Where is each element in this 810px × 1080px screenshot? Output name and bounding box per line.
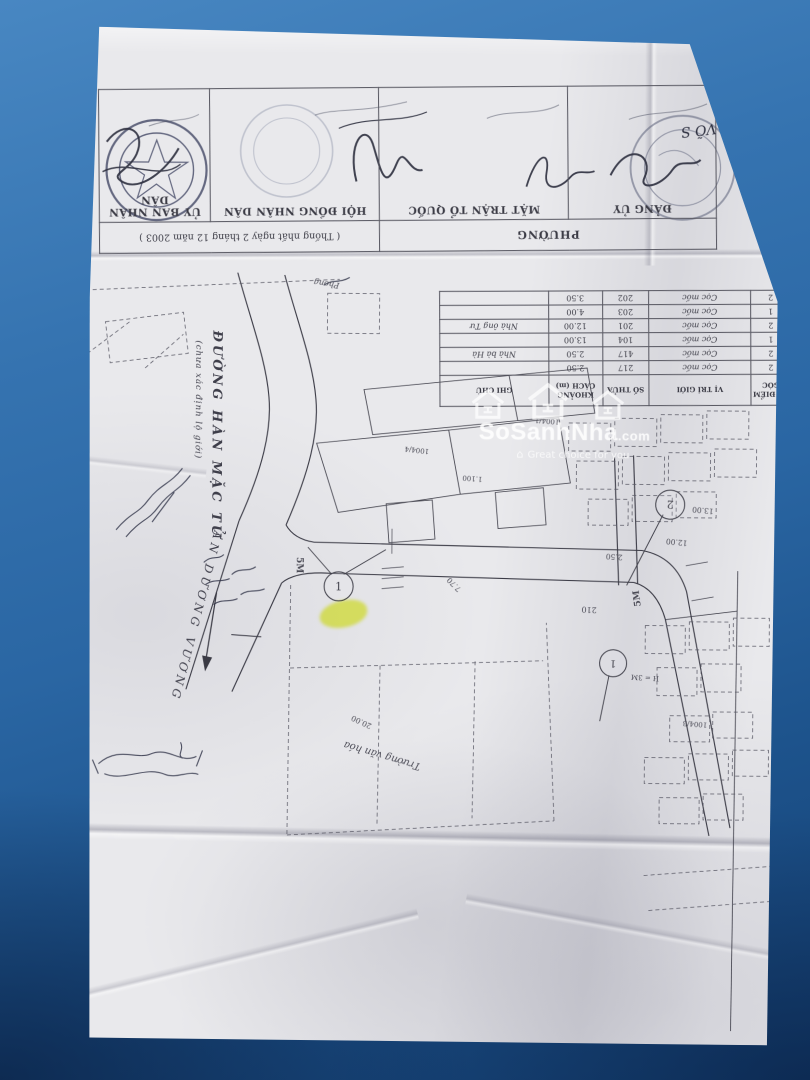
dimension-label: 13.00 [692,505,714,516]
approval-header-phuong: PHƯỜNG [380,218,717,251]
table-row: 2 Cọc mốc 417 2.50 Nhà bà Hà [440,346,791,361]
photo-scene: PHƯỜNG ( Thống nhất ngày 2 tháng 12 năm … [0,0,810,1080]
approval-table: PHƯỜNG ( Thống nhất ngày 2 tháng 12 năm … [98,85,717,254]
road-width-label: 5M [632,590,644,607]
table-row: 1 Cọc mốc 203 4.00 [440,304,791,319]
dimension-label: 12.00 [666,537,688,548]
plot-number-label: 210 [581,605,597,615]
table-row: 2 Cọc mốc 217 2.50 [440,360,791,375]
approval-cell-mat-tran: MẶT TRẬN TỔ QUỐC [379,86,569,220]
house-icon: ⌂ [517,448,524,461]
watermark: SoSanhNha.com ⌂Great choice for you [469,380,655,461]
dimension-label: 2.50 [606,552,623,562]
survey-marker-1: 1 [324,571,354,601]
table-row: 1 Cọc mốc 104 13.00 [440,332,791,347]
document-paper: PHƯỜNG ( Thống nhất ngày 2 tháng 12 năm … [82,22,779,1047]
watermark-brand: SoSanhNha.com [469,418,654,447]
height-label: H = 3M [631,673,659,683]
watermark-tagline: ⌂Great choice for you [469,447,654,461]
col-header-diem-goc: SỐ ĐIỂM GÓC [751,374,791,405]
approval-cell-dang-uy: ĐẢNG ỦY [568,85,717,219]
road-width-label: 5M [294,557,304,573]
plot-number-label: 1.100 [462,474,483,484]
approval-cell-ubnd: ỦY BAN NHÂN DÂN [98,89,210,223]
table-row: 2 Cọc mốc 201 12.00 Nhà ông Tư [440,318,791,333]
approval-cell-hdnd: HỘI ĐỒNG NHÂN DÂN [210,88,380,222]
approval-header-date: ( Thống nhất ngày 2 tháng 12 năm 2003 ) [99,221,380,254]
street-label-han-mac-tu-note: (chưa xác định lộ giới) [193,340,204,459]
street-label-han-mac-tu: ĐƯỜNG HÀN MẶC TỬ [208,330,224,539]
col-header-vi-tri: VỊ TRÍ GIỚI [649,374,751,405]
table-row: 2 Cọc mốc 202 3.50 [440,290,791,305]
